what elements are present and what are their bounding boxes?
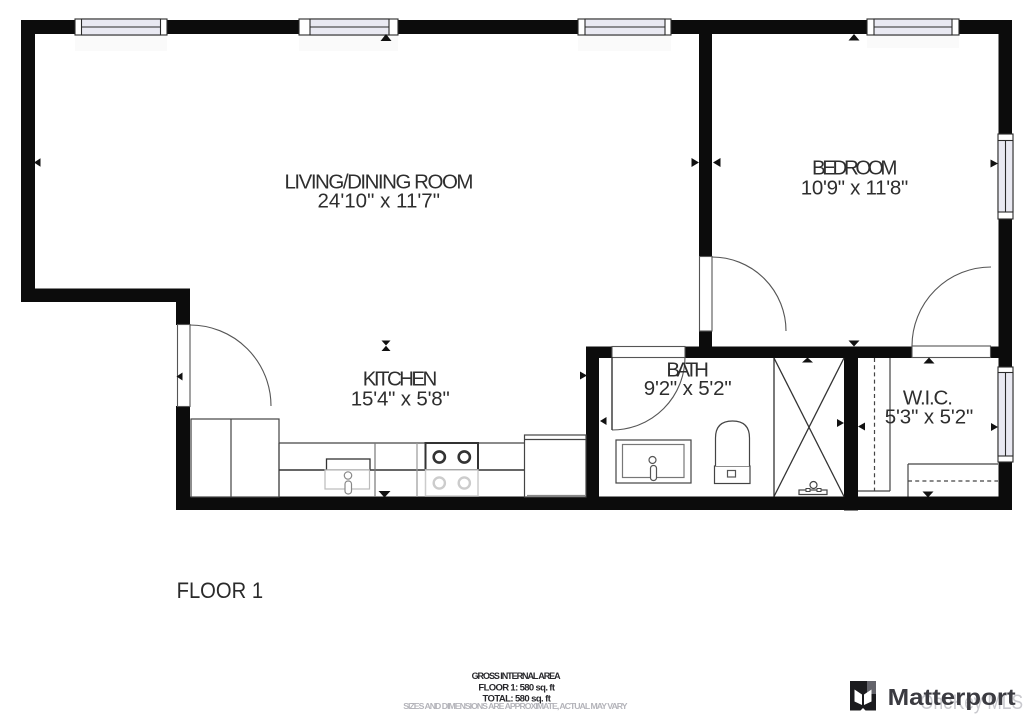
svg-text:SIZES AND DIMENSIONS ARE APPRO: SIZES AND DIMENSIONS ARE APPROXIMATE, AC…: [403, 701, 628, 711]
svg-text:10'9" x 11'8": 10'9" x 11'8": [801, 177, 909, 200]
svg-text:Matterport: Matterport: [888, 684, 1016, 710]
svg-text:5'3" x 5'2": 5'3" x 5'2": [885, 406, 974, 429]
svg-text:FLOOR 1: FLOOR 1: [177, 578, 264, 603]
svg-text:15'4" x 5'8": 15'4" x 5'8": [351, 388, 450, 411]
svg-text:24'10" x 11'7": 24'10" x 11'7": [318, 190, 441, 213]
svg-text:FLOOR 1: 580 sq. ft: FLOOR 1: 580 sq. ft: [478, 683, 555, 694]
svg-text:9'2" x 5'2": 9'2" x 5'2": [644, 377, 732, 400]
svg-text:GROSS INTERNAL AREA: GROSS INTERNAL AREA: [472, 671, 561, 681]
